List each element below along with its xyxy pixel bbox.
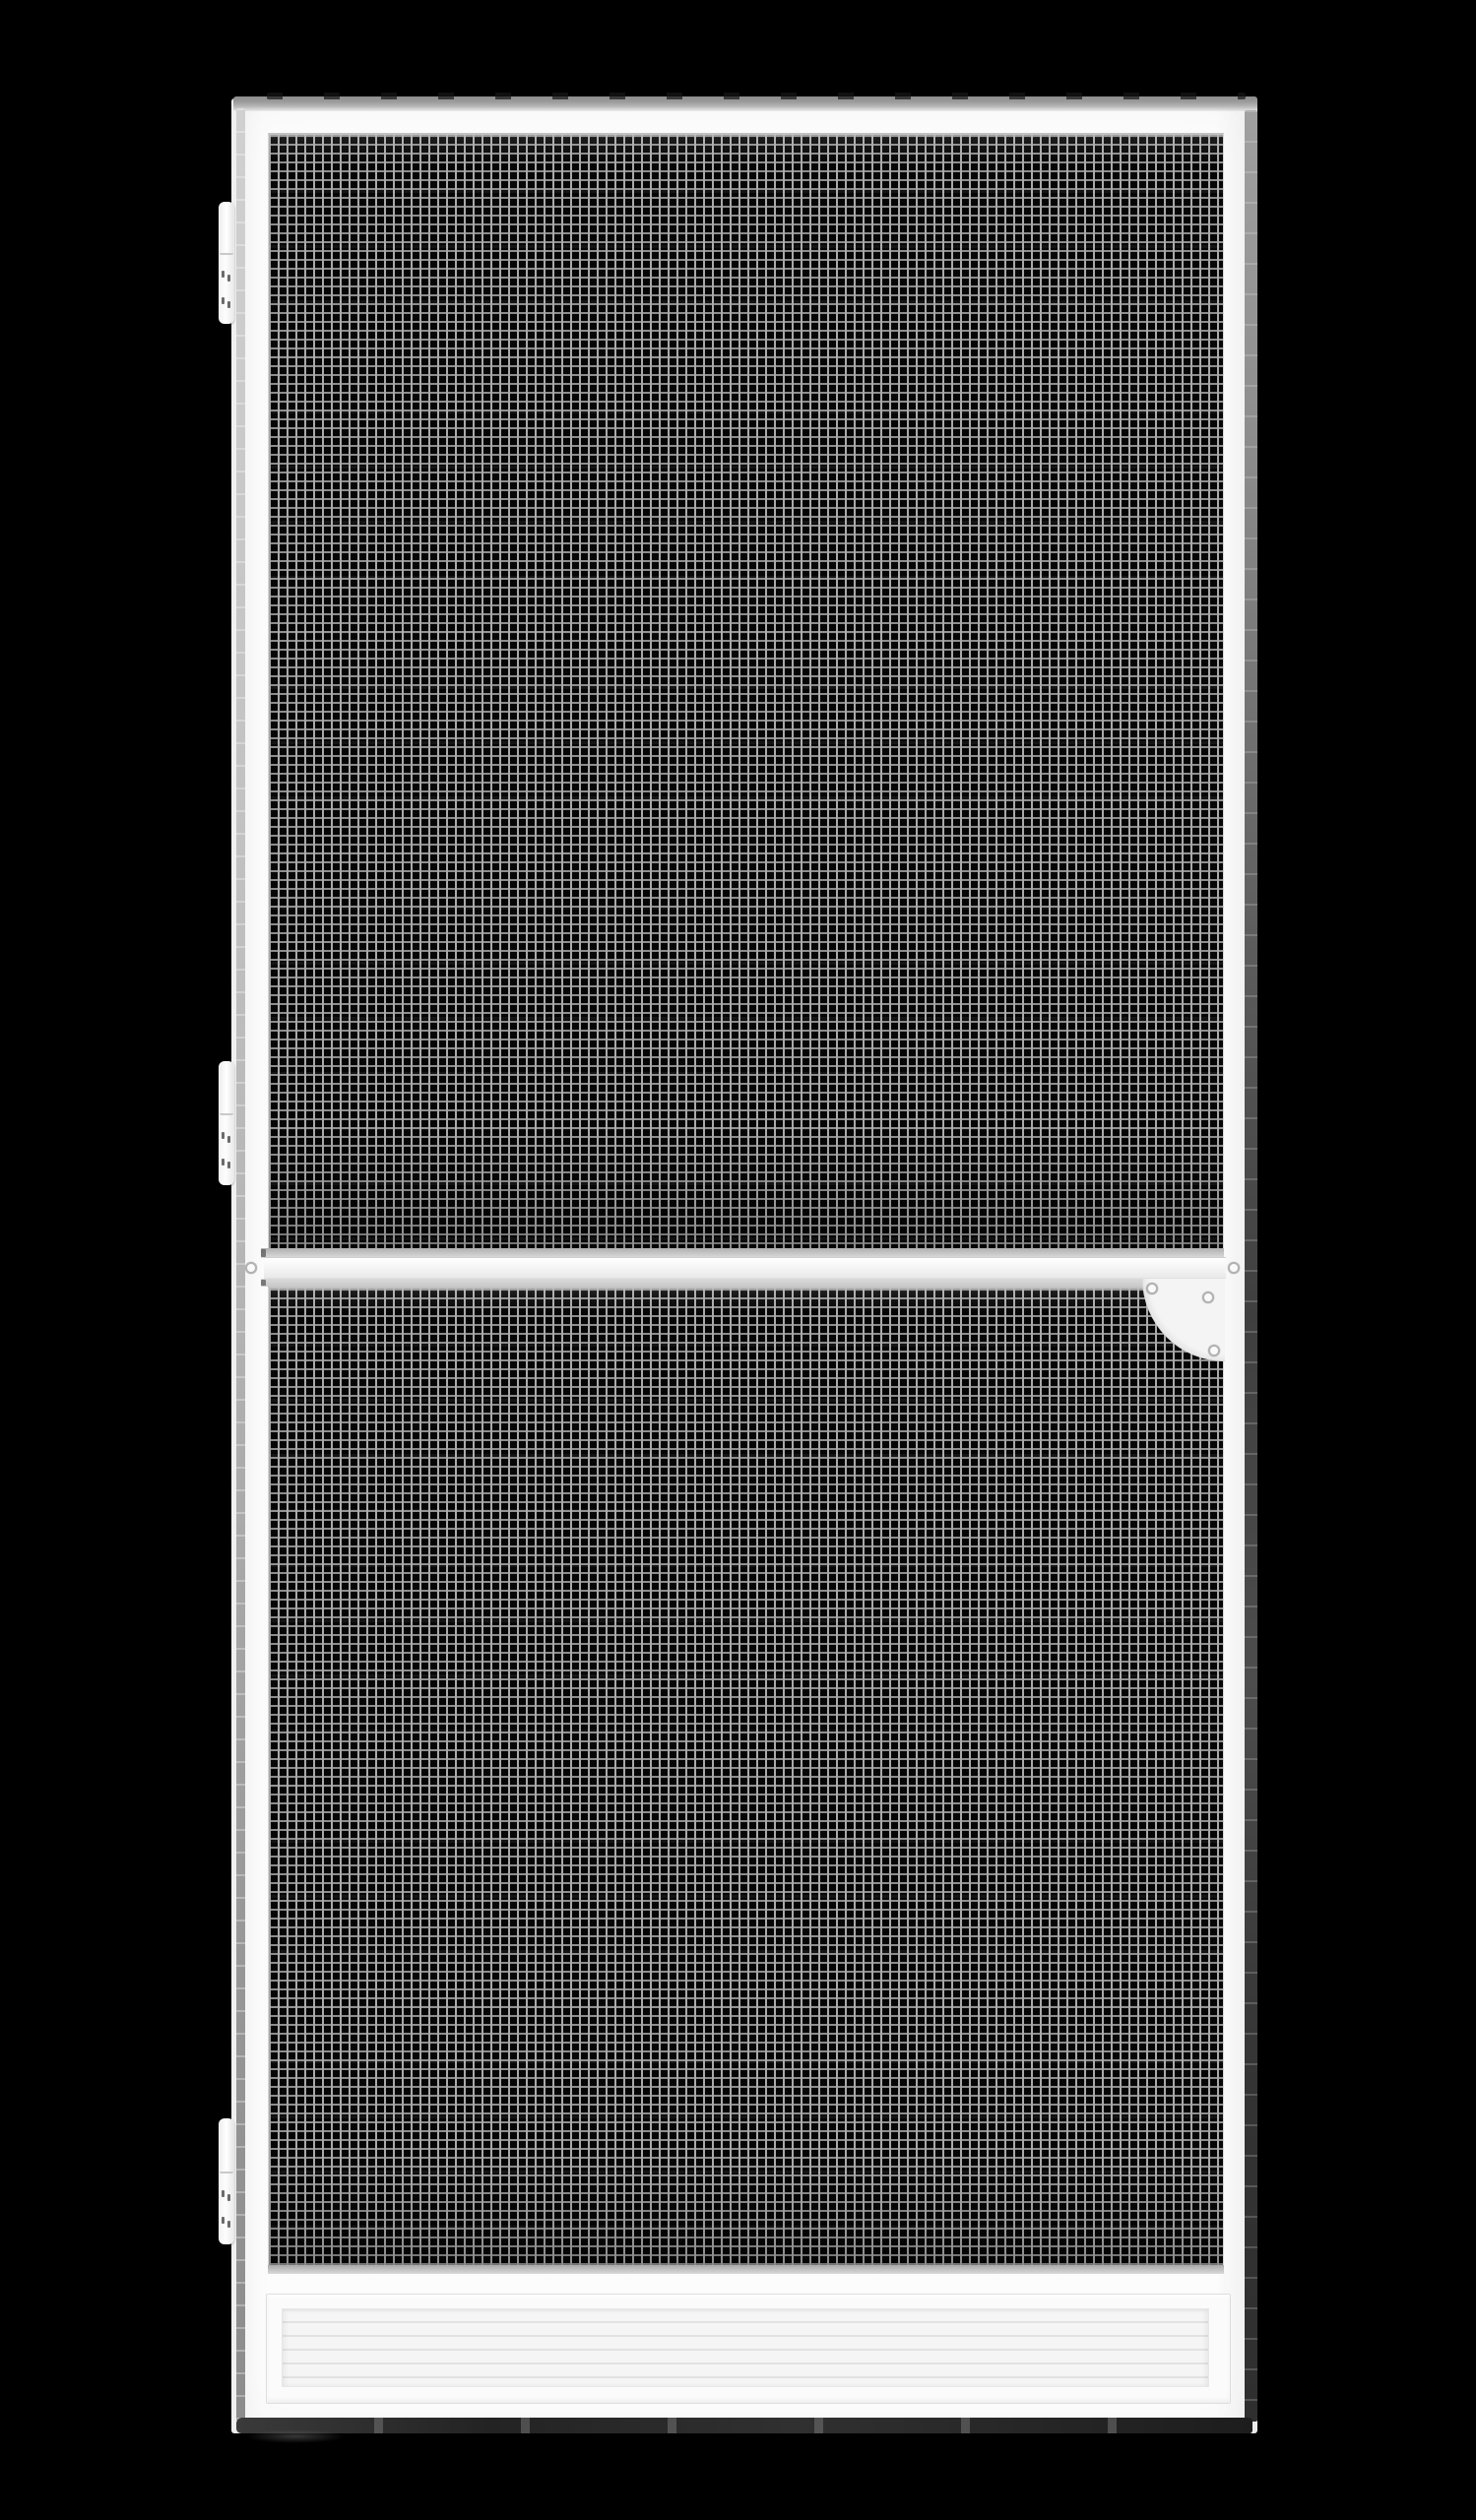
- hinge-screw-slot: [222, 1159, 225, 1165]
- screw-head: [245, 1262, 257, 1274]
- hinge-screw-slot: [222, 297, 225, 304]
- hinge-plate: [219, 2176, 234, 2244]
- screw-head: [1202, 1291, 1214, 1303]
- hinge-top: [219, 202, 234, 324]
- hinge-screw-slot: [227, 301, 230, 308]
- right-edge-shadow: [1245, 110, 1257, 2422]
- floor-smudge: [246, 2429, 345, 2443]
- hinge-middle: [219, 1061, 234, 1185]
- hinge-barrel: [220, 2118, 233, 2173]
- lower-mesh-bottom-spline: [268, 2265, 1224, 2274]
- hinge-screw-slot: [227, 1162, 230, 1168]
- screw-head: [1208, 1345, 1220, 1356]
- hinge-screw-slot: [222, 2190, 225, 2197]
- hinge-screw-slot: [227, 275, 230, 282]
- hinge-barrel: [220, 1061, 233, 1115]
- photo-stage: [0, 0, 1476, 2520]
- hinge-plate: [219, 1118, 234, 1185]
- lower-mesh-panel: [268, 1287, 1224, 2265]
- hinge-screw-slot: [227, 2221, 230, 2228]
- hinge-screw-slot: [227, 1136, 230, 1143]
- kick-plate-vent-panel: [282, 2308, 1209, 2387]
- hinge-barrel: [220, 202, 233, 255]
- hinge-screw-slot: [222, 1132, 225, 1139]
- middle-crossbar: [264, 1257, 1226, 1279]
- hinge-screw-slot: [227, 2194, 230, 2201]
- hinge-bottom: [219, 2118, 234, 2244]
- hinge-screw-slot: [222, 2217, 225, 2224]
- left-edge-shadow: [236, 108, 245, 2422]
- screw-head: [1146, 1283, 1158, 1294]
- bottom-edge-shadow: [236, 2418, 1252, 2433]
- hinge-plate: [219, 258, 234, 324]
- lower-mesh-top-spline: [261, 1279, 1145, 1287]
- top-edge-shadow: [233, 96, 1257, 111]
- screw-head: [1228, 1262, 1240, 1274]
- hinge-screw-slot: [222, 271, 225, 278]
- upper-mesh-panel: [268, 133, 1224, 1248]
